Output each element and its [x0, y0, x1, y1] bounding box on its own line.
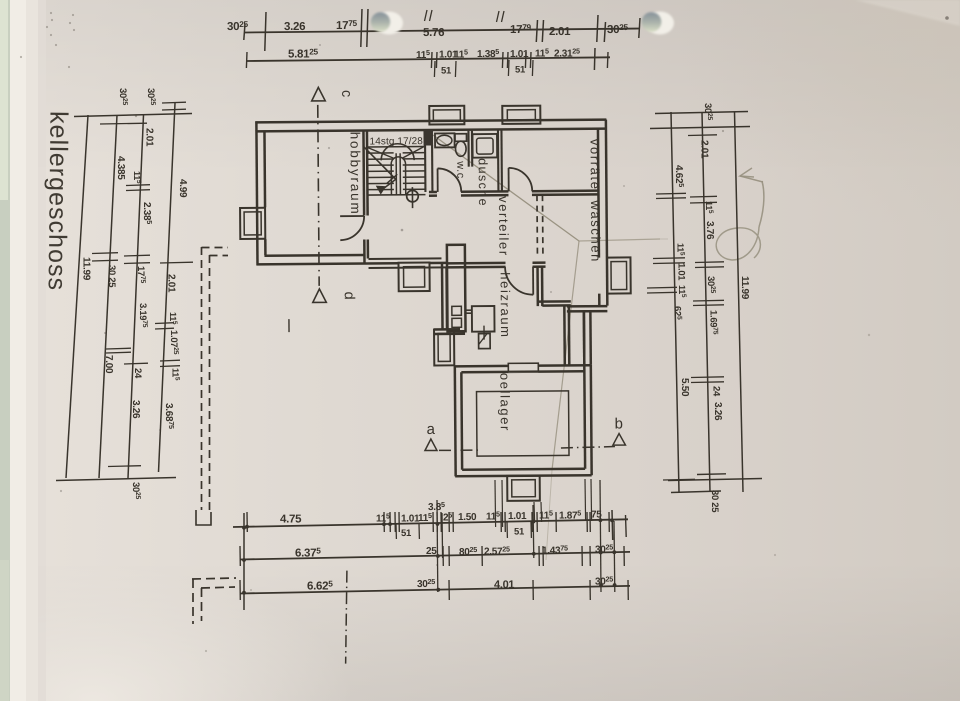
svg-text:51: 51 — [401, 528, 412, 539]
svg-text:3.76: 3.76 — [704, 221, 715, 240]
svg-text:5.76: 5.76 — [423, 27, 444, 39]
svg-text:heizraum: heizraum — [498, 272, 514, 338]
svg-text:verteiler: verteiler — [496, 196, 511, 257]
svg-text:4.01: 4.01 — [494, 579, 514, 591]
svg-text:d: d — [341, 292, 357, 300]
svg-text:51: 51 — [515, 65, 526, 76]
svg-text:2.01: 2.01 — [166, 274, 177, 293]
svg-text:w.c.: w.c. — [454, 160, 466, 182]
svg-text:dusche: dusche — [476, 158, 490, 207]
svg-text:30 25: 30 25 — [709, 490, 720, 513]
svg-text:11.99: 11.99 — [739, 276, 750, 300]
svg-text:1.01: 1.01 — [508, 511, 527, 522]
svg-text:b: b — [615, 415, 623, 432]
svg-text:5.50: 5.50 — [679, 378, 690, 397]
svg-text:51: 51 — [441, 66, 452, 77]
svg-text:25: 25 — [426, 546, 437, 557]
svg-text:7.00: 7.00 — [103, 355, 114, 374]
svg-text:30 25: 30 25 — [106, 265, 117, 288]
svg-text:2.01: 2.01 — [144, 128, 155, 147]
svg-text:3.26: 3.26 — [130, 400, 141, 419]
svg-text:hobbyraum: hobbyraum — [347, 132, 363, 216]
svg-text:1.01: 1.01 — [676, 263, 687, 281]
svg-text:kellergeschoss: kellergeschoss — [43, 111, 73, 291]
svg-text:3.26: 3.26 — [712, 402, 723, 421]
svg-text:4.99: 4.99 — [177, 179, 188, 198]
svg-text:24: 24 — [711, 386, 722, 397]
svg-text:14stg.17/28: 14stg.17/28 — [369, 136, 423, 147]
svg-text:24: 24 — [132, 368, 143, 379]
svg-text:waschen: waschen — [588, 199, 603, 263]
svg-text:11.99: 11.99 — [81, 257, 92, 281]
svg-text:c: c — [338, 90, 354, 97]
svg-text:2.01: 2.01 — [699, 140, 710, 159]
svg-text:2.01: 2.01 — [549, 26, 571, 38]
svg-text:1.01: 1.01 — [510, 49, 529, 60]
svg-text:4.385: 4.385 — [115, 156, 126, 180]
svg-text:a: a — [427, 421, 436, 438]
svg-text:oellager: oellager — [497, 373, 512, 432]
svg-text:4.75: 4.75 — [280, 514, 302, 526]
svg-text:vorräte: vorräte — [588, 139, 603, 191]
svg-text:1.50: 1.50 — [458, 512, 477, 523]
svg-text:3.26: 3.26 — [284, 21, 305, 33]
svg-text:51: 51 — [514, 527, 525, 538]
